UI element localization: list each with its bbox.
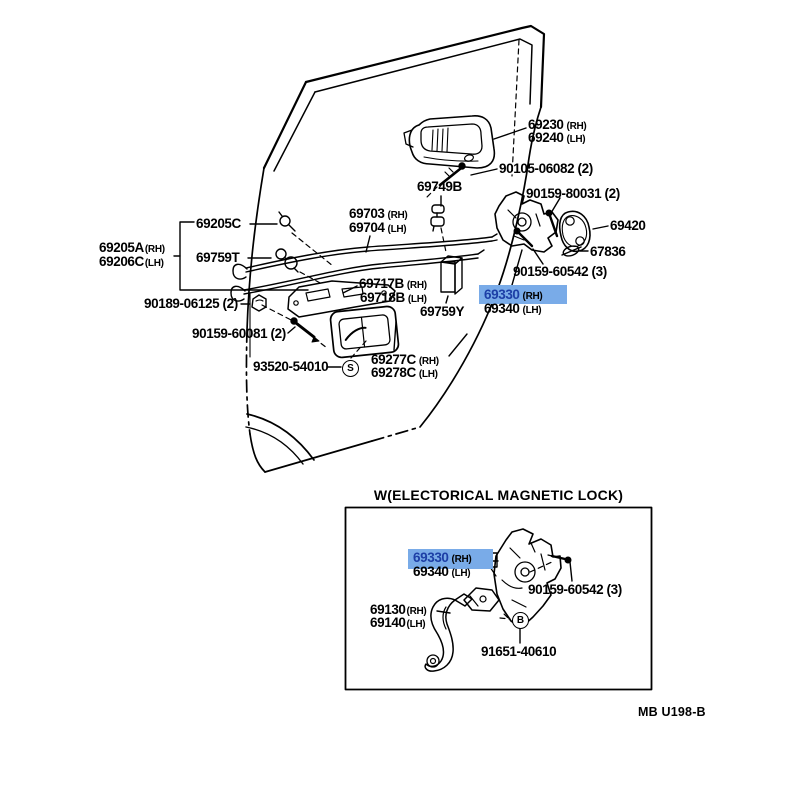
label-69759T[interactable]: 69759T (196, 251, 239, 265)
inset-label-69330-selected[interactable]: 69330(RH) (413, 551, 471, 565)
circled-s-marker: S (342, 360, 359, 377)
inset-label-69340[interactable]: 69340(LH) (413, 565, 470, 579)
outside-handle-drawing (404, 116, 494, 168)
door-lock-assembly-drawing (495, 192, 558, 252)
clip-69749B (431, 205, 444, 231)
inset-link-drawing (464, 588, 499, 611)
nut-90189-06125 (252, 295, 266, 311)
wheel-arch-inner (246, 427, 303, 464)
diagram-artwork (0, 0, 800, 800)
wheel-arch-outer (247, 414, 314, 460)
label-69717B[interactable]: 69717B(RH) (359, 277, 427, 291)
striker-plate-drawing (560, 211, 590, 251)
label-90159-60542[interactable]: 90159-60542 (3) (513, 265, 607, 279)
label-69749B[interactable]: 69749B (417, 180, 462, 194)
label-90159-80031[interactable]: 90159-80031 (2) (526, 187, 620, 201)
label-93520-54010[interactable]: 93520-54010 (253, 360, 328, 374)
screw-90159-60081 (291, 318, 319, 342)
label-69278C[interactable]: 69278C(LH) (371, 366, 438, 380)
inset-label-91651-40610[interactable]: 91651-40610 (481, 645, 556, 659)
label-90159-60081[interactable]: 90159-60081 (2) (192, 327, 286, 341)
inside-handle-bezel-drawing (330, 306, 399, 359)
circled-b-marker: B (512, 612, 529, 629)
cushion-box-drawing (441, 256, 462, 294)
inset-actuator-drawing (425, 594, 472, 671)
label-69704[interactable]: 69704(LH) (349, 221, 406, 235)
drawing-code: MB U198-B (638, 705, 706, 719)
label-69240[interactable]: 69240(LH) (528, 131, 585, 145)
inset-label-69140[interactable]: 69140(LH) (370, 616, 425, 630)
label-69340[interactable]: 69340(LH) (484, 302, 541, 316)
label-69759Y[interactable]: 69759Y (420, 305, 464, 319)
label-69205A[interactable]: 69205A(RH) (99, 241, 165, 255)
label-69703[interactable]: 69703(RH) (349, 207, 407, 221)
label-90189-06125[interactable]: 90189-06125 (2) (144, 297, 238, 311)
construction-dashes (262, 40, 519, 358)
label-69205C[interactable]: 69205C (196, 217, 241, 231)
label-67836[interactable]: 67836 (590, 245, 626, 259)
label-69330-selected[interactable]: 69330(RH) (484, 288, 542, 302)
label-69718B[interactable]: 69718B(LH) (360, 291, 427, 305)
label-90105-06082[interactable]: 90105-06082 (2) (499, 162, 593, 176)
clip-69205C (279, 212, 295, 231)
parts-diagram-page: 69230(RH) 69240(LH) 90105-06082 (2) 6974… (0, 0, 800, 800)
label-69420[interactable]: 69420 (610, 219, 646, 233)
inset-label-90159-60542[interactable]: 90159-60542 (3) (528, 583, 622, 597)
label-69206C[interactable]: 69206C(LH) (99, 255, 164, 269)
inset-title: W(ELECTORICAL MAGNETIC LOCK) (345, 487, 652, 503)
